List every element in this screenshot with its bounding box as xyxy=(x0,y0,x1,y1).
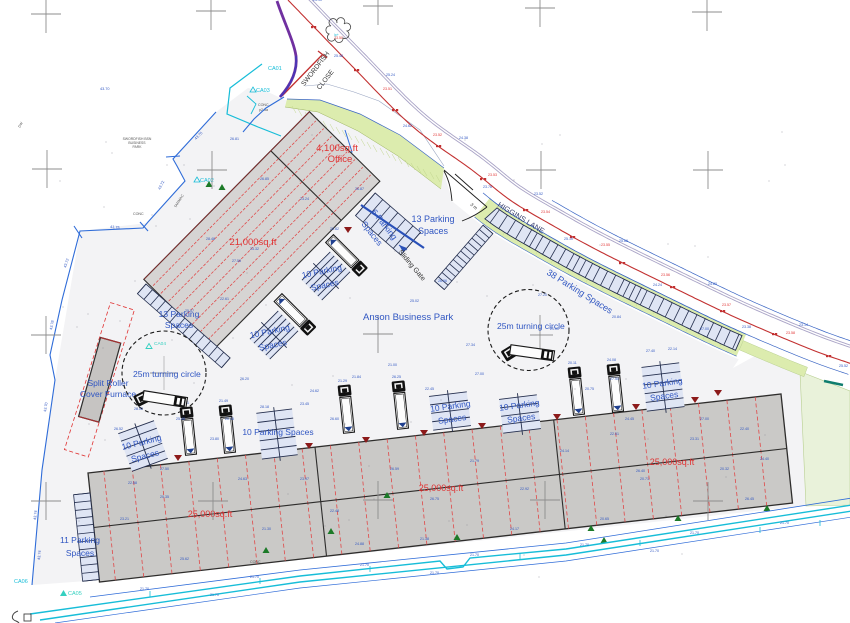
svg-text:27.50: 27.50 xyxy=(160,467,169,471)
svg-text:20.75: 20.75 xyxy=(585,387,594,391)
svg-text:21.70: 21.70 xyxy=(210,593,219,597)
svg-text:22.45: 22.45 xyxy=(425,387,434,391)
svg-text:PARK: PARK xyxy=(133,145,143,149)
svg-text:23.38: 23.38 xyxy=(742,325,751,329)
svg-text:24.45: 24.45 xyxy=(625,417,634,421)
svg-text:25.48: 25.48 xyxy=(334,54,343,58)
svg-text:23.31: 23.31 xyxy=(690,437,699,441)
svg-text:21.70: 21.70 xyxy=(690,531,699,535)
svg-text:23.52: 23.52 xyxy=(433,133,442,137)
svg-text:21.70: 21.70 xyxy=(580,543,589,547)
svg-text:26.66: 26.66 xyxy=(438,279,447,283)
svg-text:22.61: 22.61 xyxy=(220,297,229,301)
svg-text:23.76: 23.76 xyxy=(483,185,492,189)
svg-text:23.97: 23.97 xyxy=(300,477,309,481)
svg-text:20.35: 20.35 xyxy=(160,495,169,499)
svg-text:23.54: 23.54 xyxy=(541,210,550,214)
svg-text:23.24: 23.24 xyxy=(300,197,309,201)
svg-text:20.71: 20.71 xyxy=(640,477,649,481)
svg-text:21.79: 21.79 xyxy=(470,459,479,463)
svg-text:23.80: 23.80 xyxy=(210,437,219,441)
svg-text:21.70: 21.70 xyxy=(250,575,259,579)
svg-text:25.48: 25.48 xyxy=(176,417,185,421)
svg-text:26.45: 26.45 xyxy=(745,497,754,501)
svg-text:22.14: 22.14 xyxy=(668,347,677,351)
svg-text:26.81: 26.81 xyxy=(230,137,239,141)
svg-text:20.11: 20.11 xyxy=(568,361,577,365)
svg-text:24.62: 24.62 xyxy=(403,124,412,128)
svg-text:25.02: 25.02 xyxy=(410,299,419,303)
svg-text:25m turning circle: 25m turning circle xyxy=(133,369,201,379)
svg-text:Spaces: Spaces xyxy=(165,320,193,330)
svg-text:CA01: CA01 xyxy=(268,66,282,72)
svg-text:23.53: 23.53 xyxy=(488,173,497,177)
svg-text:CA04: CA04 xyxy=(154,341,166,347)
svg-text:25,000sq.ft: 25,000sq.ft xyxy=(419,483,464,493)
svg-text:26.60: 26.60 xyxy=(330,417,339,421)
svg-text:22.51: 22.51 xyxy=(610,432,619,436)
svg-text:24.62: 24.62 xyxy=(310,389,319,393)
svg-text:27.58: 27.58 xyxy=(232,259,241,263)
svg-text:43.75: 43.75 xyxy=(110,225,120,230)
svg-text:26.85: 26.85 xyxy=(260,177,269,181)
svg-text:25.24: 25.24 xyxy=(386,73,395,77)
svg-text:28.02: 28.02 xyxy=(134,407,143,411)
svg-text:Spaces: Spaces xyxy=(418,226,449,236)
svg-text:CONC: CONC xyxy=(258,103,269,107)
svg-text:22.40: 22.40 xyxy=(740,427,749,431)
svg-text:23.52: 23.52 xyxy=(534,192,543,196)
svg-text:24.14: 24.14 xyxy=(560,449,569,453)
svg-text:24.38: 24.38 xyxy=(459,136,468,140)
svg-text:20.15: 20.15 xyxy=(225,417,234,421)
svg-text:25.57: 25.57 xyxy=(185,309,194,313)
svg-text:11 Parking: 11 Parking xyxy=(60,535,100,545)
svg-text:25.10: 25.10 xyxy=(564,237,573,241)
svg-text:24.24: 24.24 xyxy=(653,283,662,287)
svg-text:21.38: 21.38 xyxy=(420,537,429,541)
svg-text:21.84: 21.84 xyxy=(352,375,361,379)
svg-text:24.40: 24.40 xyxy=(760,457,769,461)
svg-text:21.70: 21.70 xyxy=(430,571,439,575)
svg-text:25,000sq.ft: 25,000sq.ft xyxy=(188,509,233,519)
svg-text:23.21: 23.21 xyxy=(120,517,129,521)
svg-text:27.34: 27.34 xyxy=(466,343,475,347)
svg-text:20.82: 20.82 xyxy=(330,227,339,231)
svg-text:23.58: 23.58 xyxy=(786,331,795,335)
svg-text:23.55: 23.55 xyxy=(601,243,610,247)
svg-text:13 Parking: 13 Parking xyxy=(411,214,454,224)
svg-text:25.52: 25.52 xyxy=(839,364,848,368)
svg-text:22.92: 22.92 xyxy=(520,487,529,491)
svg-text:25.66: 25.66 xyxy=(619,239,628,243)
svg-text:22.48: 22.48 xyxy=(330,509,339,513)
svg-text:24.88: 24.88 xyxy=(355,542,364,546)
svg-text:24.08: 24.08 xyxy=(607,358,616,362)
svg-text:23.32: 23.32 xyxy=(250,247,259,251)
svg-text:27.00: 27.00 xyxy=(700,327,709,331)
svg-text:20.84: 20.84 xyxy=(612,315,621,319)
svg-text:27.40: 27.40 xyxy=(646,349,655,353)
svg-text:CONC: CONC xyxy=(250,560,261,564)
svg-text:26.75: 26.75 xyxy=(430,497,439,501)
svg-text:Anson Business Park: Anson Business Park xyxy=(363,312,454,323)
svg-text:27.00: 27.00 xyxy=(475,372,484,376)
svg-text:21.70: 21.70 xyxy=(470,553,479,557)
svg-text:43.70: 43.70 xyxy=(100,87,110,91)
svg-text:26.59: 26.59 xyxy=(390,467,399,471)
svg-text:CA05: CA05 xyxy=(68,591,82,597)
svg-text:26.87: 26.87 xyxy=(355,187,364,191)
svg-text:21.70: 21.70 xyxy=(780,521,789,525)
svg-text:23.45: 23.45 xyxy=(300,402,309,406)
svg-text:21.70: 21.70 xyxy=(140,587,149,591)
svg-text:21.49: 21.49 xyxy=(219,399,228,403)
svg-text:23.51: 23.51 xyxy=(383,87,392,91)
svg-text:21.70: 21.70 xyxy=(650,549,659,553)
svg-text:21.30: 21.30 xyxy=(262,527,271,531)
svg-text:24.63: 24.63 xyxy=(238,477,247,481)
svg-text:25.62: 25.62 xyxy=(180,557,189,561)
svg-text:23.56: 23.56 xyxy=(661,273,670,277)
svg-text:27.20: 27.20 xyxy=(538,293,547,297)
svg-text:21.29: 21.29 xyxy=(338,379,347,383)
svg-text:Office: Office xyxy=(328,154,353,165)
svg-text:10 Parking Spaces: 10 Parking Spaces xyxy=(242,427,313,437)
svg-text:23.10: 23.10 xyxy=(313,0,322,2)
svg-text:24.17: 24.17 xyxy=(510,527,519,531)
svg-text:Spaces: Spaces xyxy=(66,548,94,558)
svg-text:23.57: 23.57 xyxy=(722,303,731,307)
svg-text:22.58: 22.58 xyxy=(128,481,137,485)
svg-text:23.14: 23.14 xyxy=(799,323,808,327)
svg-text:26.40: 26.40 xyxy=(636,469,645,473)
svg-text:lp+: lp+ xyxy=(334,33,339,37)
svg-text:26.52: 26.52 xyxy=(114,427,123,431)
svg-text:28.48: 28.48 xyxy=(206,237,215,241)
svg-text:CONC: CONC xyxy=(133,212,144,216)
svg-text:CA03: CA03 xyxy=(256,88,270,94)
svg-text:20.32: 20.32 xyxy=(720,467,729,471)
svg-text:21.70: 21.70 xyxy=(360,563,369,567)
svg-text:28.18: 28.18 xyxy=(260,405,269,409)
svg-text:CA06: CA06 xyxy=(14,579,28,585)
svg-text:24.80: 24.80 xyxy=(708,282,717,286)
svg-text:27.50: 27.50 xyxy=(610,377,619,381)
svg-text:21.00: 21.00 xyxy=(388,363,397,367)
svg-text:27.00: 27.00 xyxy=(700,417,709,421)
svg-text:4,100sq.ft: 4,100sq.ft xyxy=(316,143,358,154)
svg-text:26.25: 26.25 xyxy=(392,375,401,379)
svg-text:25,000sq.ft: 25,000sq.ft xyxy=(650,457,695,467)
svg-text:20.65: 20.65 xyxy=(600,517,609,521)
svg-text:21.00: 21.00 xyxy=(550,327,559,331)
